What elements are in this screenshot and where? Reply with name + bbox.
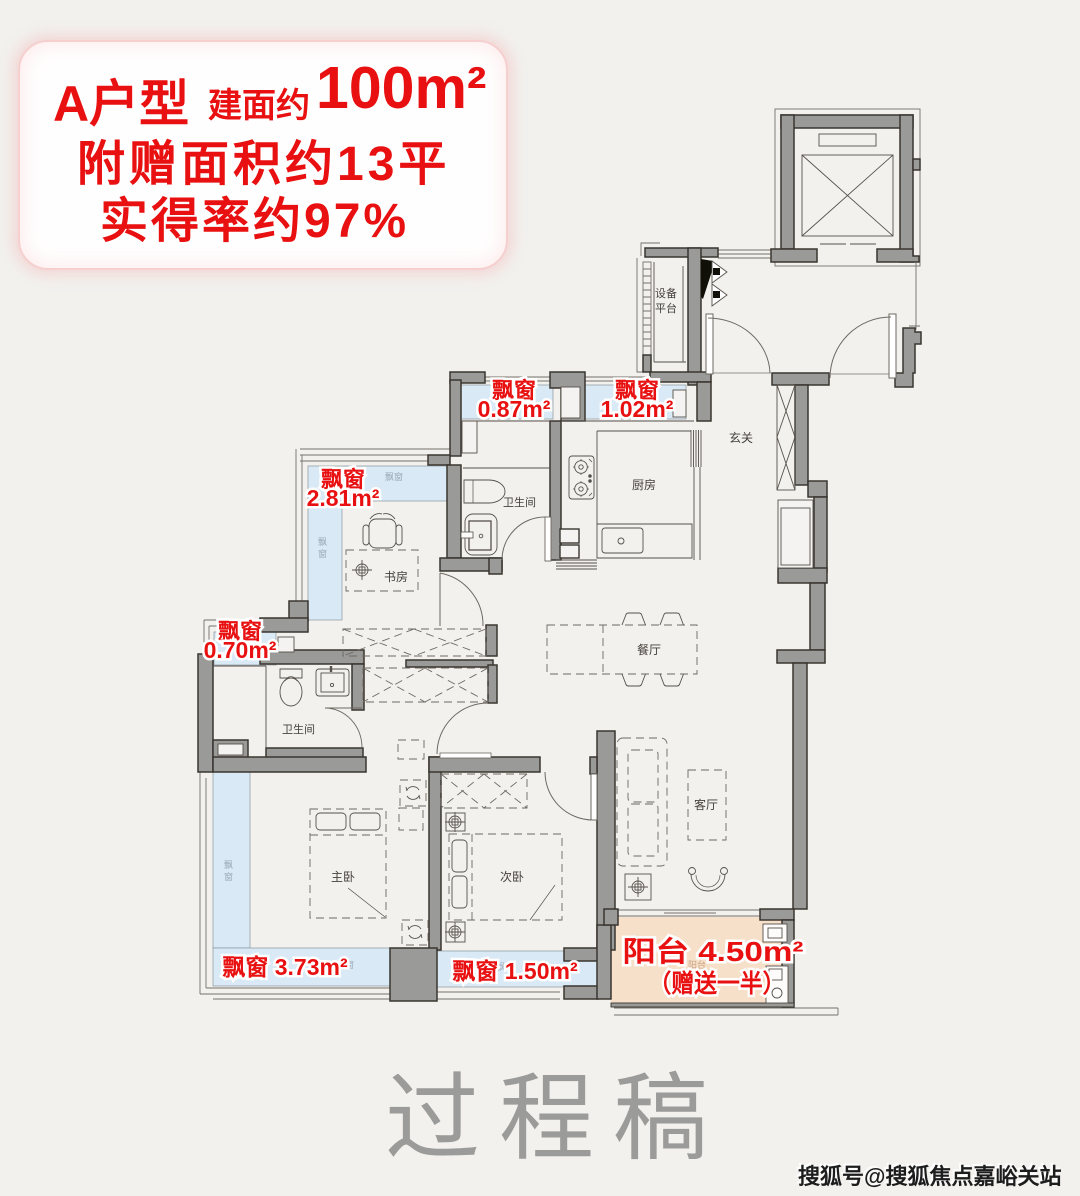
svg-text:窗: 窗	[224, 871, 233, 882]
svg-text:飘窗 1.50m²: 飘窗 1.50m²	[452, 958, 578, 984]
svg-text:次卧: 次卧	[500, 870, 524, 884]
svg-text:书房: 书房	[384, 569, 408, 584]
svg-text:1.02m²: 1.02m²	[601, 396, 674, 422]
svg-text:2.81m²: 2.81m²	[307, 485, 380, 511]
svg-text:飘窗 3.73m²: 飘窗 3.73m²	[222, 954, 348, 980]
svg-text:平台: 平台	[655, 301, 677, 315]
svg-text:（赠送一半）: （赠送一半）	[649, 969, 786, 998]
svg-text:飘: 飘	[318, 537, 327, 547]
svg-text:客厅: 客厅	[694, 797, 718, 812]
svg-text:0.87m²: 0.87m²	[478, 396, 551, 422]
svg-text:卫生间: 卫生间	[282, 722, 315, 736]
svg-text:厨房: 厨房	[632, 477, 656, 492]
svg-text:餐厅: 餐厅	[637, 642, 661, 657]
svg-text:0.70m²: 0.70m²	[204, 637, 277, 663]
svg-text:主卧: 主卧	[331, 870, 355, 884]
svg-text:阳台 4.50m²: 阳台 4.50m²	[623, 935, 804, 967]
svg-text:飘: 飘	[224, 860, 233, 870]
svg-text:玄关: 玄关	[729, 430, 753, 445]
svg-text:设备: 设备	[655, 286, 677, 300]
svg-text:飘窗: 飘窗	[385, 471, 403, 482]
svg-text:窗: 窗	[318, 548, 327, 559]
svg-text:卫生间: 卫生间	[503, 495, 536, 509]
